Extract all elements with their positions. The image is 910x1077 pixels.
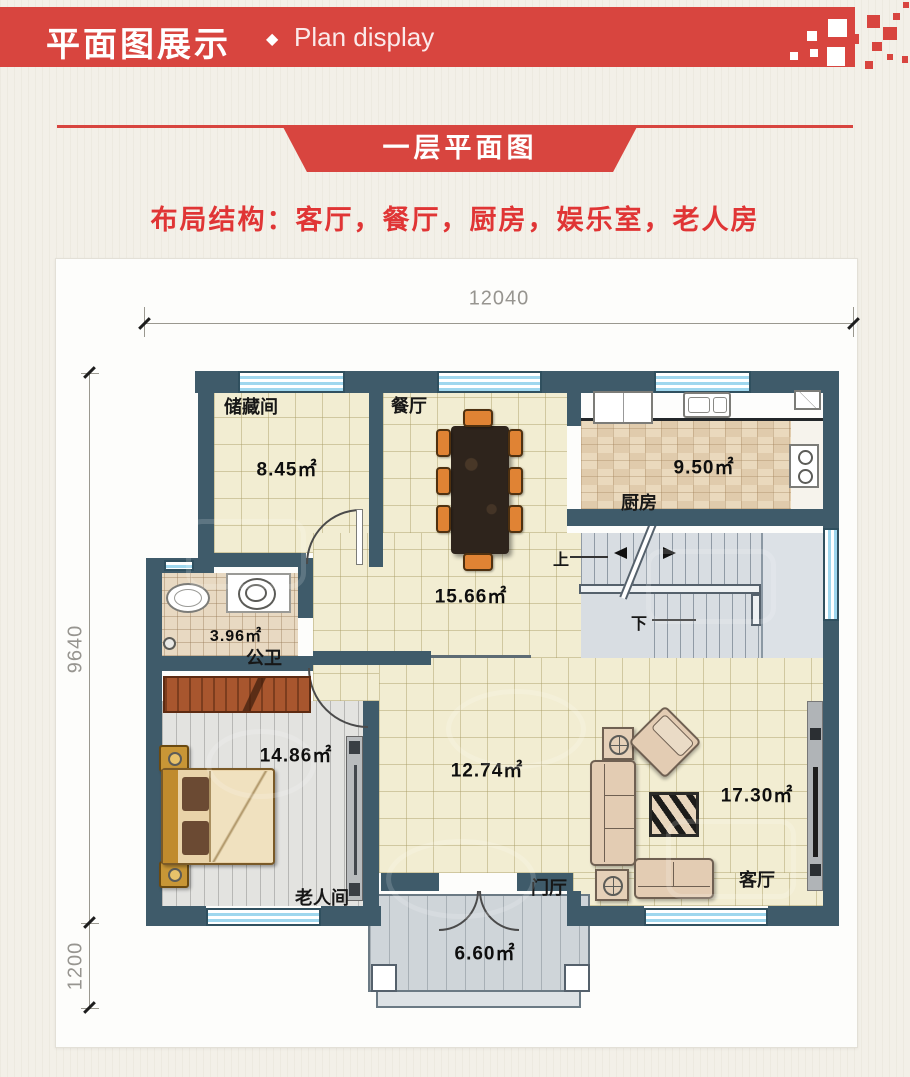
dining-table <box>451 426 509 554</box>
living-area: 17.30㎡ <box>721 781 794 808</box>
dim-width-label: 12040 <box>469 288 530 311</box>
layout-subtitle: 布局结构：客厅，餐厅，厨房，娱乐室，老人房 <box>0 198 910 237</box>
stair-arrow-left <box>608 547 627 559</box>
stair-up-label: 上 <box>553 546 569 570</box>
sofa-three-seat <box>590 760 636 866</box>
hall-cabinet <box>163 676 311 713</box>
bath-area: 3.96㎡ <box>210 622 262 646</box>
stair-down-label: 下 <box>631 610 647 634</box>
dining-chair <box>508 467 523 495</box>
tv-cabinet <box>807 701 823 891</box>
dim-porch-label: 1200 <box>65 942 88 991</box>
porch-column <box>564 964 590 992</box>
nightstand <box>159 861 189 888</box>
dining-chair <box>508 505 523 533</box>
window <box>823 528 839 621</box>
dining-chair <box>508 429 523 457</box>
storage-door-leaf <box>356 509 363 565</box>
storage-name: 储藏间 <box>224 393 278 419</box>
plan-card: 12040 9640 1200 <box>55 258 858 1048</box>
kitchen-name: 厨房 <box>621 489 657 515</box>
stove <box>789 444 819 488</box>
window <box>644 908 768 926</box>
wardrobe <box>346 736 363 901</box>
side-table <box>595 869 629 901</box>
diamond-icon: ◆ <box>266 29 278 49</box>
page-title-en: Plan display <box>294 22 434 53</box>
floor-drain <box>163 637 176 650</box>
bath-name: 公卫 <box>246 644 282 670</box>
storage-area: 8.45㎡ <box>257 455 318 482</box>
side-table <box>602 727 634 760</box>
header-banner: 平面图展示 ◆ Plan display <box>0 7 855 67</box>
window <box>437 371 542 393</box>
dining-chair <box>463 553 493 571</box>
pillow <box>182 777 209 811</box>
dining-chair <box>436 505 451 533</box>
foyer-area: 6.60㎡ <box>455 939 516 966</box>
dining-chair <box>436 467 451 495</box>
elder-name: 老人间 <box>295 884 349 910</box>
floor-ribbon: 一层平面图 <box>282 125 638 172</box>
porch-column <box>371 964 397 992</box>
kitchen-sink <box>683 392 731 418</box>
dim-height-label: 9640 <box>65 625 88 674</box>
window <box>238 371 345 393</box>
corner-shelf <box>794 390 821 410</box>
dining-name: 餐厅 <box>391 392 427 418</box>
dining-chair <box>436 429 451 457</box>
headboard <box>163 770 178 863</box>
page-title: 平面图展示 <box>46 17 231 66</box>
foyer-name: 门厅 <box>531 874 567 900</box>
fridge <box>593 391 653 424</box>
window <box>206 908 321 926</box>
dining-chair <box>463 409 493 427</box>
window <box>654 371 751 393</box>
dining-area: 15.66㎡ <box>435 582 508 609</box>
page: 平面图展示 ◆ Plan display 一层平面图 布局结构：客厅，餐厅，厨房… <box>0 0 910 1077</box>
pillow <box>182 821 209 855</box>
kitchen-area: 9.50㎡ <box>674 453 735 480</box>
